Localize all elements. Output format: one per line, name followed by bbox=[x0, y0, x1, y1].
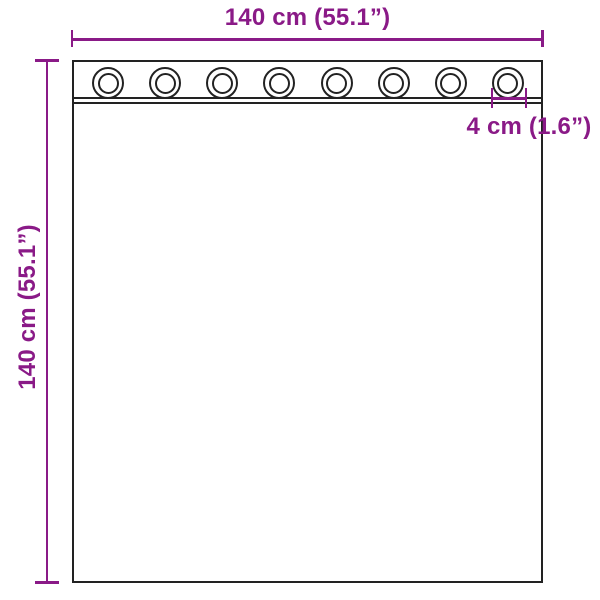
grommet-hole bbox=[212, 73, 233, 94]
grommet-hole bbox=[98, 73, 119, 94]
width-dimension-label: 140 cm (55.1”) bbox=[72, 4, 543, 32]
grommet bbox=[321, 67, 353, 99]
grommet-hole bbox=[440, 73, 461, 94]
grommet-hole bbox=[155, 73, 176, 94]
height-dimension-cap-bottom bbox=[35, 581, 59, 584]
spacing-dimension-label: 4 cm (1.6”) bbox=[467, 113, 592, 141]
grommet bbox=[435, 67, 467, 99]
grommet-hole bbox=[269, 73, 290, 94]
width-dimension-cap-left bbox=[71, 30, 74, 47]
grommet bbox=[92, 67, 124, 99]
grommet-hole bbox=[497, 73, 518, 94]
grommet bbox=[378, 67, 410, 99]
height-dimension-label: 140 cm (55.1”) bbox=[14, 224, 42, 390]
spacing-dimension-tick-left bbox=[491, 88, 494, 108]
height-dimension-line bbox=[46, 60, 49, 583]
width-dimension-cap-right bbox=[541, 30, 544, 47]
curtain-diagram: 140 cm (55.1”) 140 cm (55.1”) 4 cm (1.6”… bbox=[0, 0, 600, 600]
spacing-dimension-line bbox=[492, 97, 527, 100]
grommet-hole bbox=[326, 73, 347, 94]
spacing-dimension-tick-right bbox=[525, 88, 528, 108]
width-dimension-line bbox=[72, 38, 543, 41]
grommet bbox=[149, 67, 181, 99]
header-band-line-lower bbox=[74, 102, 541, 104]
grommet bbox=[492, 67, 524, 99]
header-band-line-upper bbox=[74, 97, 541, 99]
height-dimension-cap-top bbox=[35, 59, 59, 62]
grommet-hole bbox=[383, 73, 404, 94]
